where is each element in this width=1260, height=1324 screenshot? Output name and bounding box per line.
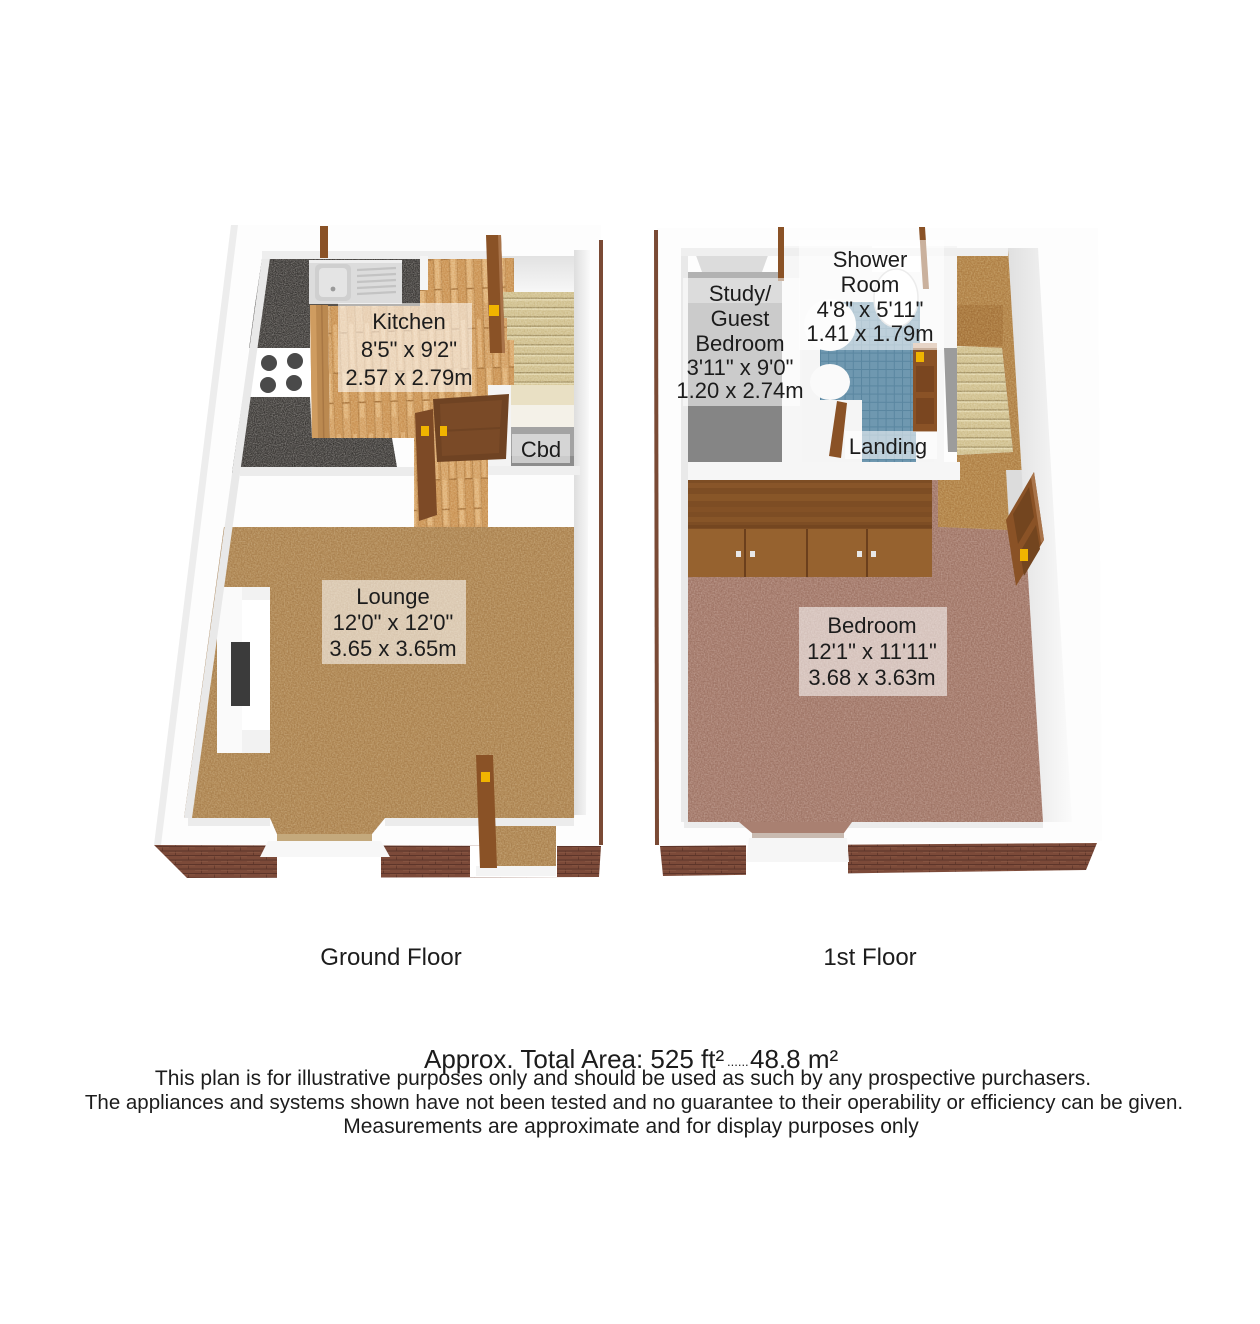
svg-text:8'5" x 9'2": 8'5" x 9'2" [361,337,457,362]
svg-text:Study/: Study/ [709,281,772,306]
svg-text:Bedroom: Bedroom [827,613,916,638]
svg-text:This plan is for illustrative: This plan is for illustrative purposes o… [155,1067,1091,1090]
svg-text:Kitchen: Kitchen [372,309,445,334]
svg-text:1.20 x 2.74m: 1.20 x 2.74m [676,378,803,403]
svg-text:2.57 x 2.79m: 2.57 x 2.79m [345,365,472,390]
svg-text:Room: Room [841,272,900,297]
svg-text:Ground Floor: Ground Floor [320,944,461,971]
svg-text:12'0" x 12'0": 12'0" x 12'0" [333,610,454,635]
svg-text:1.41 x 1.79m: 1.41 x 1.79m [806,321,933,346]
svg-text:Shower: Shower [833,247,908,272]
svg-text:1st Floor: 1st Floor [823,944,916,971]
svg-text:Bedroom: Bedroom [695,331,784,356]
svg-text:3'11" x 9'0": 3'11" x 9'0" [687,355,794,380]
svg-text:The appliances and systems sho: The appliances and systems shown have no… [85,1091,1183,1114]
svg-text:12'1" x 11'11": 12'1" x 11'11" [807,639,937,664]
svg-text:3.68 x 3.63m: 3.68 x 3.63m [808,665,935,690]
svg-text:4'8" x 5'11": 4'8" x 5'11" [817,297,924,322]
svg-text:Guest: Guest [711,306,770,331]
svg-text:Cbd: Cbd [521,437,561,462]
svg-text:Lounge: Lounge [356,584,429,609]
svg-text:3.65 x 3.65m: 3.65 x 3.65m [329,636,456,661]
svg-text:Landing: Landing [849,434,927,459]
svg-text:Measurements are approximate a: Measurements are approximate and for dis… [343,1115,919,1138]
